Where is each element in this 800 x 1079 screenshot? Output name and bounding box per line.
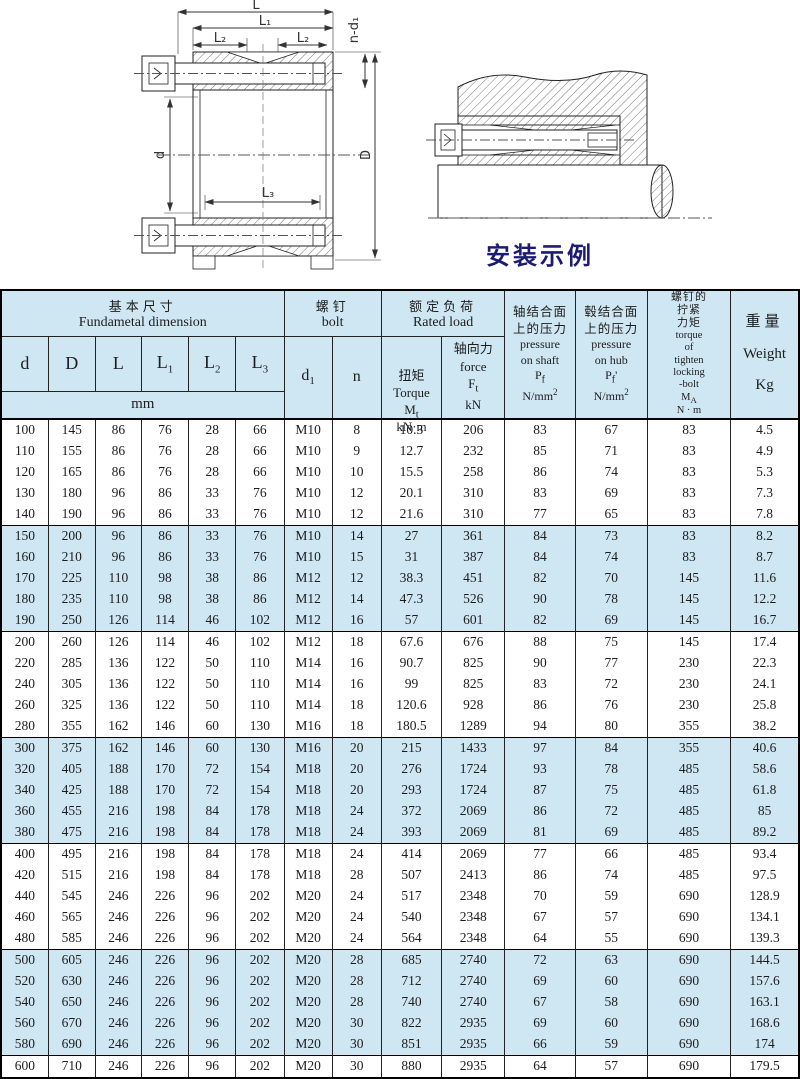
cell: 38 bbox=[189, 568, 236, 589]
cell: 66 bbox=[236, 462, 284, 483]
table-row: 44054524622696202M202451723487059690128.… bbox=[1, 886, 799, 907]
cell: 190 bbox=[1, 610, 48, 632]
cell: 226 bbox=[141, 928, 188, 950]
cell: 76 bbox=[236, 525, 284, 547]
dim-label-L1: L₁ bbox=[259, 14, 271, 29]
table-row: 180235110983886M121447.3526907814512.2 bbox=[1, 589, 799, 610]
cell: 160 bbox=[1, 547, 48, 568]
cell: 8.7 bbox=[731, 547, 799, 568]
cell: 74 bbox=[575, 547, 647, 568]
col-header-L2: L2 bbox=[189, 336, 236, 392]
cell: 38.3 bbox=[381, 568, 441, 589]
table-row: 46056524622696202M202454023486757690134.… bbox=[1, 907, 799, 928]
header-fundamental-dimension: 基本尺寸 Fundametal dimension bbox=[1, 290, 284, 336]
col-header-n: n bbox=[332, 336, 381, 419]
cell: 20.1 bbox=[381, 483, 441, 504]
cell: 565 bbox=[48, 907, 95, 928]
cell: 122 bbox=[141, 695, 188, 716]
cell: 126 bbox=[95, 631, 141, 653]
cell: 690 bbox=[647, 928, 730, 950]
cell: 163.1 bbox=[731, 992, 799, 1013]
cell: 58 bbox=[575, 992, 647, 1013]
cell: M12 bbox=[284, 631, 332, 653]
cell: 500 bbox=[1, 949, 48, 971]
cell: 24.1 bbox=[731, 674, 799, 695]
cell: 110 bbox=[95, 589, 141, 610]
cell: 361 bbox=[442, 525, 505, 547]
cell: 485 bbox=[647, 780, 730, 801]
cell: 178 bbox=[236, 822, 284, 844]
torque-unit-overflow: kN·m bbox=[396, 419, 426, 435]
cell: 28 bbox=[189, 441, 236, 462]
cell: 515 bbox=[48, 865, 95, 886]
cell: 72 bbox=[189, 759, 236, 780]
cell: 230 bbox=[647, 674, 730, 695]
cell: 96 bbox=[95, 547, 141, 568]
cell: 475 bbox=[48, 822, 95, 844]
cell: 202 bbox=[236, 928, 284, 950]
cell: 180.5 bbox=[381, 716, 441, 738]
cell: 165 bbox=[48, 462, 95, 483]
cell: 46 bbox=[189, 631, 236, 653]
cell: 157.6 bbox=[731, 971, 799, 992]
cell: 130 bbox=[236, 737, 284, 759]
cell: 33 bbox=[189, 504, 236, 526]
cell: 178 bbox=[236, 865, 284, 886]
cell: 206 bbox=[442, 419, 505, 441]
cell: 50 bbox=[189, 674, 236, 695]
cell: 690 bbox=[647, 1034, 730, 1056]
cell: 83 bbox=[647, 462, 730, 483]
cell: 75 bbox=[575, 631, 647, 653]
cell: 86 bbox=[141, 525, 188, 547]
cell: 28 bbox=[332, 865, 381, 886]
cell: 74 bbox=[575, 865, 647, 886]
cell: 145 bbox=[647, 610, 730, 632]
cell: 67 bbox=[505, 907, 575, 928]
cell: M10 bbox=[284, 483, 332, 504]
cell: 76 bbox=[236, 547, 284, 568]
table-row: 40049521619884178M18244142069776648593.4 bbox=[1, 843, 799, 865]
table-row: 50060524622696202M202868527407263690144.… bbox=[1, 949, 799, 971]
cell: 400 bbox=[1, 843, 48, 865]
table-body: 10014586762866M10810.32068367834.5110155… bbox=[1, 419, 799, 1078]
cell: 690 bbox=[647, 1055, 730, 1078]
cell: 310 bbox=[442, 504, 505, 526]
cell: 380 bbox=[1, 822, 48, 844]
cell: 355 bbox=[647, 716, 730, 738]
cell: 202 bbox=[236, 992, 284, 1013]
cell: 28 bbox=[332, 992, 381, 1013]
cell: M18 bbox=[284, 865, 332, 886]
cell: 128.9 bbox=[731, 886, 799, 907]
dim-label-d: d bbox=[153, 151, 168, 159]
cell: 59 bbox=[575, 1034, 647, 1056]
cell: 451 bbox=[442, 568, 505, 589]
cell: 144.5 bbox=[731, 949, 799, 971]
cell: 69 bbox=[575, 610, 647, 632]
cell: 210 bbox=[48, 547, 95, 568]
cell: 216 bbox=[95, 865, 141, 886]
cell: 76 bbox=[575, 695, 647, 716]
cell: 90.7 bbox=[381, 653, 441, 674]
cell: 110 bbox=[236, 653, 284, 674]
cell: 38.2 bbox=[731, 716, 799, 738]
cell: 928 bbox=[442, 695, 505, 716]
cell: 76 bbox=[141, 462, 188, 483]
cell: 96 bbox=[189, 1034, 236, 1056]
cell: 485 bbox=[647, 759, 730, 780]
cell: 507 bbox=[381, 865, 441, 886]
cell: 580 bbox=[1, 1034, 48, 1056]
cell: 70 bbox=[505, 886, 575, 907]
cell: 83 bbox=[505, 674, 575, 695]
cell: M20 bbox=[284, 907, 332, 928]
installation-example-drawing bbox=[420, 60, 720, 260]
table-row: 19025012611446102M121657601826914516.7 bbox=[1, 610, 799, 632]
cell: 130 bbox=[236, 716, 284, 738]
cell: 2348 bbox=[442, 928, 505, 950]
cell: 15 bbox=[332, 547, 381, 568]
cell: 60 bbox=[575, 971, 647, 992]
cell: 540 bbox=[381, 907, 441, 928]
cell: 94 bbox=[505, 716, 575, 738]
cell: 460 bbox=[1, 907, 48, 928]
cell: 630 bbox=[48, 971, 95, 992]
cell: 851 bbox=[381, 1034, 441, 1056]
cell: 293 bbox=[381, 780, 441, 801]
table-row: 12016586762866M101015.52588674835.3 bbox=[1, 462, 799, 483]
cell: 96 bbox=[189, 907, 236, 928]
cell: 2935 bbox=[442, 1034, 505, 1056]
cell: 825 bbox=[442, 674, 505, 695]
cell: 67.6 bbox=[381, 631, 441, 653]
table-header: 基本尺寸 Fundametal dimension 螺钉 bolt 额定负荷 R… bbox=[1, 290, 799, 419]
dim-label-L2-right: L₂ bbox=[297, 31, 309, 46]
cell: 258 bbox=[442, 462, 505, 483]
cell: 198 bbox=[141, 801, 188, 822]
header-bolt: 螺钉 bolt bbox=[284, 290, 381, 336]
col-header-d: d bbox=[1, 336, 48, 392]
cell: 14 bbox=[332, 589, 381, 610]
cell: 180 bbox=[1, 589, 48, 610]
table-row: 16021096863376M1015313878474838.7 bbox=[1, 547, 799, 568]
cell: 12 bbox=[332, 568, 381, 589]
cell: 216 bbox=[95, 822, 141, 844]
table-row: 28035516214660130M1618180.51289948035538… bbox=[1, 716, 799, 738]
table-row: 36045521619884178M18243722069867248585 bbox=[1, 801, 799, 822]
cell: 600 bbox=[1, 1055, 48, 1078]
cell: 24 bbox=[332, 843, 381, 865]
cell: 20 bbox=[332, 780, 381, 801]
cell: 24 bbox=[332, 822, 381, 844]
cell: M14 bbox=[284, 674, 332, 695]
cell: 690 bbox=[647, 886, 730, 907]
cell: 78 bbox=[575, 589, 647, 610]
cell: M18 bbox=[284, 843, 332, 865]
cell: 114 bbox=[141, 610, 188, 632]
cell: M10 bbox=[284, 419, 332, 441]
cell: 170 bbox=[141, 780, 188, 801]
header-weight: 重量 Weight Kg bbox=[731, 290, 799, 419]
cell: 81 bbox=[505, 822, 575, 844]
cell: M18 bbox=[284, 822, 332, 844]
cell: 98 bbox=[141, 589, 188, 610]
cell: 76 bbox=[141, 419, 188, 441]
cell: 540 bbox=[1, 992, 48, 1013]
cell: 545 bbox=[48, 886, 95, 907]
cell: 72 bbox=[575, 801, 647, 822]
cell: 420 bbox=[1, 865, 48, 886]
col-header-D: D bbox=[48, 336, 95, 392]
cell: 517 bbox=[381, 886, 441, 907]
cell: 96 bbox=[95, 525, 141, 547]
cell: 83 bbox=[647, 547, 730, 568]
cell: 355 bbox=[647, 737, 730, 759]
table-row: 56067024622696202M203082229356960690168.… bbox=[1, 1013, 799, 1034]
cell: 96 bbox=[95, 504, 141, 526]
cell: 96 bbox=[189, 1013, 236, 1034]
cell: 325 bbox=[48, 695, 95, 716]
cell: 387 bbox=[442, 547, 505, 568]
cell: 585 bbox=[48, 928, 95, 950]
cell: 280 bbox=[1, 716, 48, 738]
table-row: 30037516214660130M16202151433978435540.6 bbox=[1, 737, 799, 759]
cell: 130 bbox=[1, 483, 48, 504]
header-rated-load: 额定负荷 Rated load bbox=[381, 290, 504, 336]
dim-label-L3: L₃ bbox=[262, 186, 274, 201]
cell: 136 bbox=[95, 695, 141, 716]
cell: 66 bbox=[236, 419, 284, 441]
cell: 18 bbox=[332, 631, 381, 653]
cell: 310 bbox=[442, 483, 505, 504]
cell: 145 bbox=[647, 631, 730, 653]
cell: 86 bbox=[95, 419, 141, 441]
cell: 61.8 bbox=[731, 780, 799, 801]
table-row: 22028513612250110M141690.7825907723022.3 bbox=[1, 653, 799, 674]
cell: 136 bbox=[95, 653, 141, 674]
cell: 33 bbox=[189, 483, 236, 504]
cell: 246 bbox=[95, 1055, 141, 1078]
cell: 7.3 bbox=[731, 483, 799, 504]
cell: M20 bbox=[284, 992, 332, 1013]
cell: M18 bbox=[284, 780, 332, 801]
header-tightening-torque: 螺钉的 拧紧 力矩 torque of tighten locking -bol… bbox=[647, 290, 730, 419]
cell: 93.4 bbox=[731, 843, 799, 865]
cell: 84 bbox=[189, 801, 236, 822]
dim-label-L: L bbox=[252, 0, 260, 13]
table-row: 32040518817072154M18202761724937848558.6 bbox=[1, 759, 799, 780]
cell: 226 bbox=[141, 971, 188, 992]
cell: 69 bbox=[505, 1013, 575, 1034]
cell: 24 bbox=[332, 801, 381, 822]
cell: 102 bbox=[236, 631, 284, 653]
cell: 360 bbox=[1, 801, 48, 822]
cell: M20 bbox=[284, 1034, 332, 1056]
cell: 24 bbox=[332, 928, 381, 950]
cell: 246 bbox=[95, 1013, 141, 1034]
cell: 355 bbox=[48, 716, 95, 738]
cell: 76 bbox=[141, 441, 188, 462]
col-header-torque: 扭矩 Torque Mt kN·m bbox=[381, 336, 441, 419]
cell: 84 bbox=[189, 822, 236, 844]
cell: 28 bbox=[189, 462, 236, 483]
cell: 86 bbox=[141, 483, 188, 504]
cell: 162 bbox=[95, 716, 141, 738]
cell: 154 bbox=[236, 780, 284, 801]
cell: 246 bbox=[95, 992, 141, 1013]
cell: 90 bbox=[505, 653, 575, 674]
cell: 96 bbox=[95, 483, 141, 504]
cell: 560 bbox=[1, 1013, 48, 1034]
cell: 202 bbox=[236, 971, 284, 992]
cell: 710 bbox=[48, 1055, 95, 1078]
cell: 880 bbox=[381, 1055, 441, 1078]
cell: 246 bbox=[95, 949, 141, 971]
dim-label-L2-left: L₂ bbox=[214, 31, 226, 46]
cell: 69 bbox=[575, 822, 647, 844]
cell: 235 bbox=[48, 589, 95, 610]
dimension-table: 基本尺寸 Fundametal dimension 螺钉 bolt 额定负荷 R… bbox=[0, 289, 800, 1079]
cell: 84 bbox=[189, 865, 236, 886]
cell: 110 bbox=[236, 695, 284, 716]
cell: 154 bbox=[236, 759, 284, 780]
cell: 170 bbox=[1, 568, 48, 589]
cell: 98 bbox=[141, 568, 188, 589]
cell: 2348 bbox=[442, 886, 505, 907]
cell: 82 bbox=[505, 610, 575, 632]
cell: 16 bbox=[332, 674, 381, 695]
installation-caption: 安装示例 bbox=[486, 236, 594, 271]
cell: 12.2 bbox=[731, 589, 799, 610]
cell: 30 bbox=[332, 1055, 381, 1078]
cell: 5.3 bbox=[731, 462, 799, 483]
cell: 485 bbox=[647, 865, 730, 886]
cell: 93 bbox=[505, 759, 575, 780]
cell: 86 bbox=[505, 695, 575, 716]
cell: 480 bbox=[1, 928, 48, 950]
cell: M10 bbox=[284, 525, 332, 547]
table-row: 13018096863376M101220.13108369837.3 bbox=[1, 483, 799, 504]
cell: 83 bbox=[647, 504, 730, 526]
cell: 66 bbox=[575, 843, 647, 865]
cell: 605 bbox=[48, 949, 95, 971]
cell: M10 bbox=[284, 462, 332, 483]
cell: 67 bbox=[505, 992, 575, 1013]
cell: 84 bbox=[189, 843, 236, 865]
cell: 520 bbox=[1, 971, 48, 992]
col-header-L3: L3 bbox=[236, 336, 284, 392]
cell: 7.8 bbox=[731, 504, 799, 526]
cell: 246 bbox=[95, 907, 141, 928]
cell: 76 bbox=[236, 504, 284, 526]
table-row: 24030513612250110M141699825837223024.1 bbox=[1, 674, 799, 695]
cell: 202 bbox=[236, 907, 284, 928]
cell: 57 bbox=[575, 1055, 647, 1078]
cell: 225 bbox=[48, 568, 95, 589]
cell: 99 bbox=[381, 674, 441, 695]
table-row: 52063024622696202M202871227406960690157.… bbox=[1, 971, 799, 992]
cell: 670 bbox=[48, 1013, 95, 1034]
cell: 16.7 bbox=[731, 610, 799, 632]
cell: 601 bbox=[442, 610, 505, 632]
cell: 276 bbox=[381, 759, 441, 780]
cell: 145 bbox=[48, 419, 95, 441]
cell: 110 bbox=[236, 674, 284, 695]
cell: 712 bbox=[381, 971, 441, 992]
cell: 18 bbox=[332, 695, 381, 716]
table-row: 34042518817072154M18202931724877548561.8 bbox=[1, 780, 799, 801]
cell: 96 bbox=[189, 928, 236, 950]
locking-assembly-section-drawing: L L₁ L₂ L₂ n-d₁ d D L₃ bbox=[130, 0, 400, 289]
cell: 66 bbox=[505, 1034, 575, 1056]
table-row: 54065024622696202M202874027406758690163.… bbox=[1, 992, 799, 1013]
cell: 300 bbox=[1, 737, 48, 759]
cell: 246 bbox=[95, 886, 141, 907]
cell: 65 bbox=[575, 504, 647, 526]
cell: 96 bbox=[189, 992, 236, 1013]
cell: 2413 bbox=[442, 865, 505, 886]
col-header-L: L bbox=[95, 336, 141, 392]
cell: 38 bbox=[189, 589, 236, 610]
cell: 178 bbox=[236, 801, 284, 822]
cell: 2069 bbox=[442, 843, 505, 865]
cell: M20 bbox=[284, 971, 332, 992]
cell: 180 bbox=[48, 483, 95, 504]
cell: 226 bbox=[141, 992, 188, 1013]
cell: 31 bbox=[381, 547, 441, 568]
cell: 220 bbox=[1, 653, 48, 674]
cell: 83 bbox=[647, 419, 730, 441]
cell: 226 bbox=[141, 1055, 188, 1078]
cell: 260 bbox=[1, 695, 48, 716]
cell: 202 bbox=[236, 886, 284, 907]
cell: 226 bbox=[141, 1013, 188, 1034]
cell: 216 bbox=[95, 843, 141, 865]
cell: 82 bbox=[505, 568, 575, 589]
cell: 200 bbox=[48, 525, 95, 547]
cell: 139.3 bbox=[731, 928, 799, 950]
cell: 2740 bbox=[442, 992, 505, 1013]
cell: 690 bbox=[647, 992, 730, 1013]
header-pressure-on-shaft: 轴结合面 上的压力 pressure on shaft Pf N/mm2 bbox=[505, 290, 575, 419]
cell: 10 bbox=[332, 462, 381, 483]
cell: 80 bbox=[575, 716, 647, 738]
cell: 17.4 bbox=[731, 631, 799, 653]
cell: 96 bbox=[189, 886, 236, 907]
table-row: 170225110983886M121238.3451827014511.6 bbox=[1, 568, 799, 589]
cell: 226 bbox=[141, 1034, 188, 1056]
drawings-section: L L₁ L₂ L₂ n-d₁ d D L₃ bbox=[0, 0, 800, 289]
cell: 20 bbox=[332, 759, 381, 780]
cell: 84 bbox=[505, 525, 575, 547]
cell: 97 bbox=[505, 737, 575, 759]
cell: 86 bbox=[505, 801, 575, 822]
header-pressure-on-hub: 毂结合面 上的压力 pressure on hub Pf' N/mm2 bbox=[575, 290, 647, 419]
cell: 122 bbox=[141, 653, 188, 674]
cell: 55 bbox=[575, 928, 647, 950]
cell: 30 bbox=[332, 1034, 381, 1056]
dim-label-D: D bbox=[359, 150, 374, 160]
cell: 250 bbox=[48, 610, 95, 632]
cell: M14 bbox=[284, 695, 332, 716]
cell: 33 bbox=[189, 547, 236, 568]
cell: 120.6 bbox=[381, 695, 441, 716]
table-row: 58069024622696202M203085129356659690174 bbox=[1, 1034, 799, 1056]
cell: 246 bbox=[95, 1034, 141, 1056]
cell: 246 bbox=[95, 971, 141, 992]
cell: 30 bbox=[332, 1013, 381, 1034]
